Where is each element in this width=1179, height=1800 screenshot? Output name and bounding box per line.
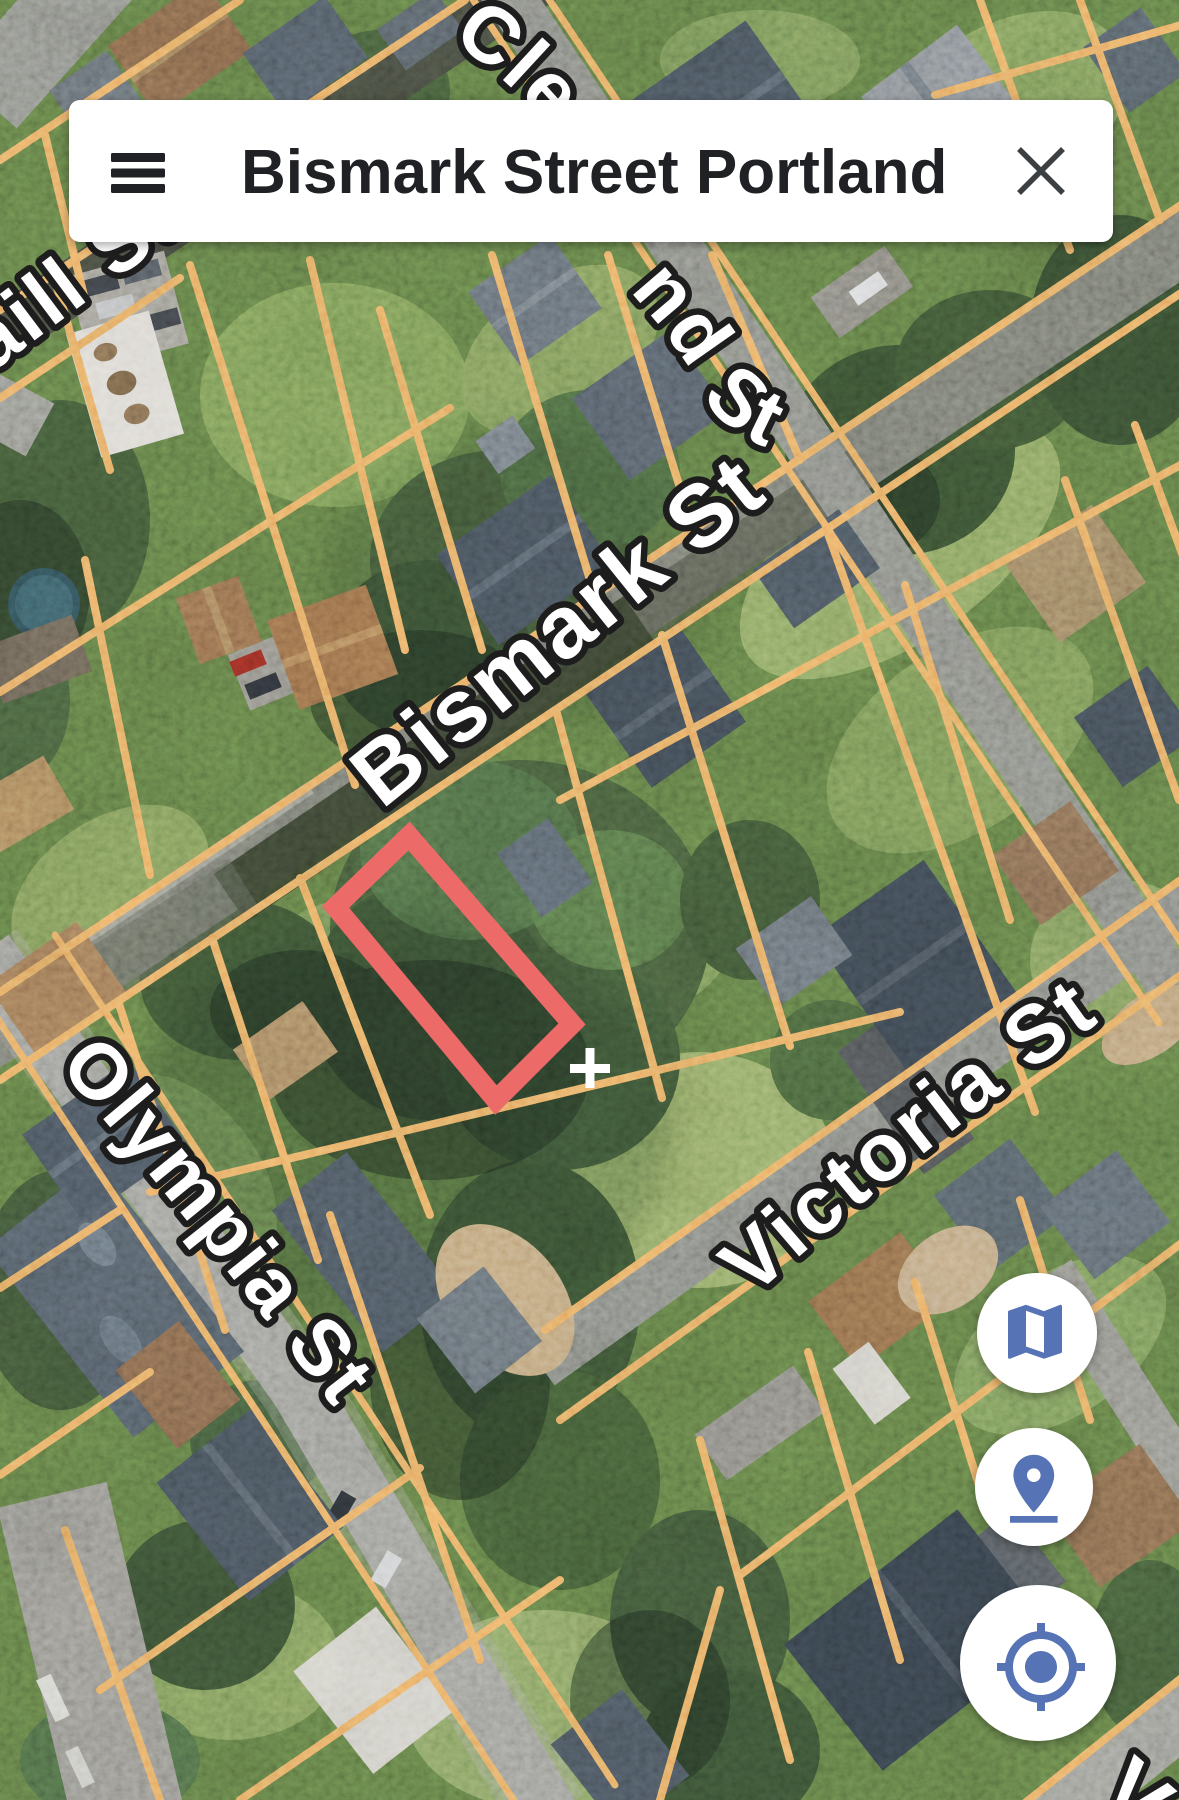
svg-text:Bismark Street Portland: Bismark Street Portland [241,138,947,207]
